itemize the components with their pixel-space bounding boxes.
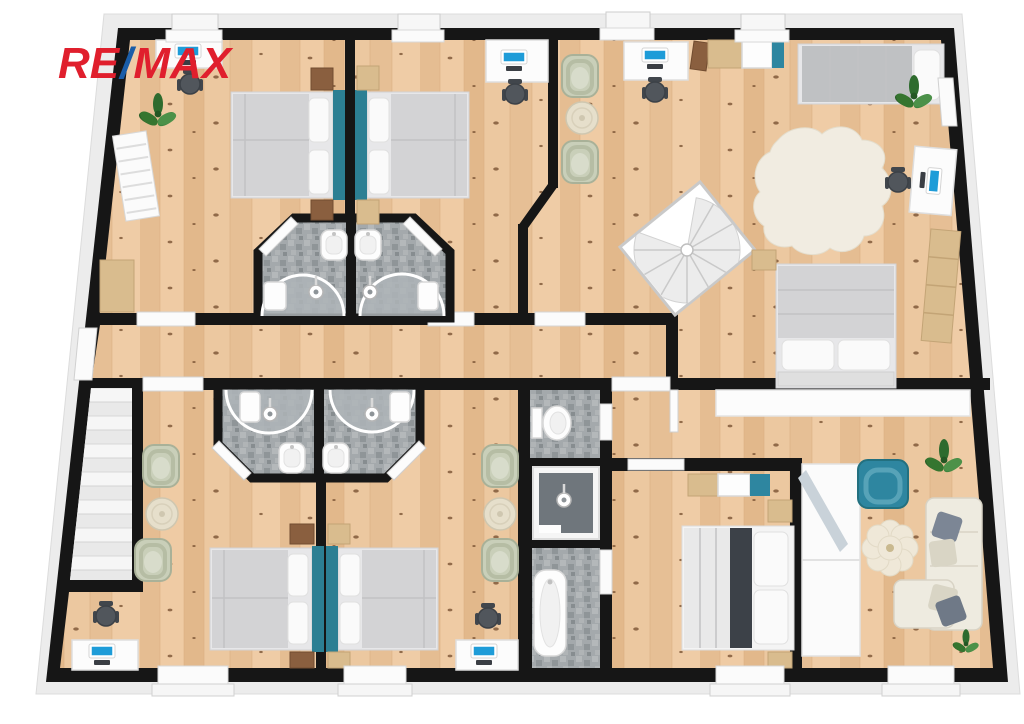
- round-table-icon: [484, 498, 516, 530]
- window-bottom: [882, 666, 960, 696]
- window-bottom: [338, 666, 412, 696]
- bathroom-pod-top: [258, 214, 450, 318]
- door-leaf-hallway: [670, 390, 678, 432]
- nightstand: [311, 200, 333, 220]
- window-dormer: [392, 14, 444, 42]
- window-bottom: [152, 666, 234, 696]
- door-bathroom: [600, 550, 612, 594]
- door-wc: [600, 404, 612, 440]
- desk-right: [909, 146, 957, 215]
- bath-mat: [240, 392, 260, 422]
- toilet-tank: [532, 408, 542, 438]
- wardrobe: [798, 464, 860, 656]
- wicker-chair-icon: [562, 55, 598, 97]
- remax-logo: RE/MAX: [58, 42, 231, 86]
- cowhide-rug: [754, 127, 891, 255]
- wicker-chair-icon: [562, 141, 598, 183]
- door-bedroom-bottom-left: [143, 377, 203, 391]
- bath-mat: [264, 282, 286, 310]
- wicker-chair-icon: [482, 445, 518, 487]
- toilet-bowl: [550, 412, 566, 434]
- bath-mat: [390, 392, 410, 422]
- nightstand: [752, 250, 776, 270]
- door-bedroom-top-left: [137, 312, 195, 326]
- shower-room: [533, 467, 599, 539]
- window-dormer: [166, 14, 222, 42]
- sink-icon: [321, 230, 347, 260]
- door-hallway: [612, 377, 670, 391]
- remax-logo-slash: /: [119, 39, 133, 88]
- corridor-floor: [92, 325, 666, 378]
- long-shelf: [716, 390, 970, 416]
- single-bed: [798, 44, 944, 104]
- wall-b-c: [548, 28, 558, 188]
- window-dormer: [600, 12, 654, 40]
- bathtub-basin: [540, 579, 560, 647]
- door-studio: [535, 312, 585, 326]
- wicker-chair-icon: [482, 539, 518, 581]
- shower-step: [539, 525, 561, 533]
- shelf: [688, 474, 770, 496]
- bathroom-pod-bottom: [212, 381, 426, 480]
- sink-icon: [323, 443, 349, 473]
- window-bottom: [710, 666, 790, 696]
- bed-runner: [730, 528, 752, 648]
- wall-b-c-lower: [518, 224, 528, 313]
- sink-icon: [355, 230, 381, 260]
- pod-top-divider: [346, 214, 356, 318]
- remax-logo-re: RE: [58, 39, 119, 88]
- cabinet: [100, 260, 134, 312]
- nightstand: [328, 524, 350, 544]
- stair-end-wall: [60, 580, 143, 592]
- flower-rug: [862, 520, 918, 576]
- corridor-east-wall: [666, 313, 678, 381]
- nightstand: [311, 68, 333, 90]
- door-bedroom-bottom-right: [628, 459, 684, 470]
- nightstand: [290, 524, 314, 544]
- round-table-icon: [146, 498, 178, 530]
- remax-logo-max: MAX: [133, 39, 231, 88]
- nightstand: [357, 66, 379, 90]
- wicker-chair-icon: [135, 539, 171, 581]
- nightstand: [768, 500, 792, 522]
- floor-plan-svg: [0, 0, 1024, 724]
- sofa-pillow: [928, 538, 957, 567]
- nightstand: [290, 652, 314, 668]
- wc: [532, 406, 571, 440]
- nightstand: [357, 200, 379, 224]
- wicker-chair-icon: [143, 445, 179, 487]
- bathtub-drain: [548, 580, 553, 585]
- floor-plan-page: RE/MAX: [0, 0, 1024, 724]
- sideboard: [690, 40, 784, 71]
- window-dormer: [735, 14, 789, 42]
- bath-column-left-wall: [518, 378, 530, 668]
- bath-mat: [418, 282, 438, 310]
- armchair: [858, 460, 908, 508]
- round-table-icon: [566, 102, 598, 134]
- sink-icon: [279, 443, 305, 473]
- bathroom: [534, 570, 566, 656]
